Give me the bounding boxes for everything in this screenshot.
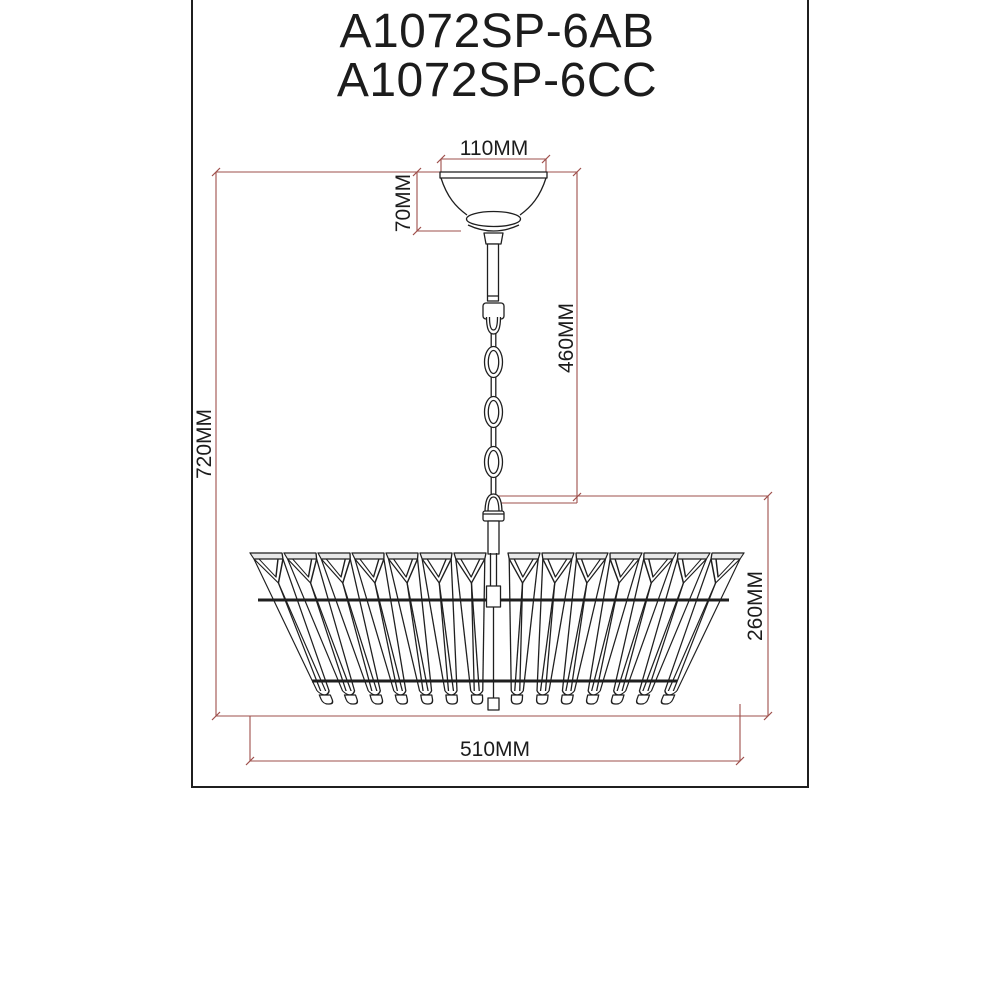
sheet-border [192, 0, 808, 787]
drawing-sheet: A1072SP-6AB A1072SP-6CC [0, 0, 1000, 1000]
dim-shade-diameter-label: 510MM [460, 738, 530, 761]
shade-center-stem [487, 553, 501, 710]
dim-overall-height-label: 720MM [193, 409, 216, 479]
ceiling-canopy [440, 172, 547, 244]
dim-canopy-height-label: 70MM [392, 174, 415, 232]
model-number-1: A1072SP-6AB [339, 5, 654, 58]
dim-chain-length-label: 460MM [555, 303, 578, 373]
suspension-chain [483, 244, 504, 554]
dimension-labels: 110MM 70MM 460MM 720MM 260MM 510MM [193, 137, 767, 761]
dim-shade-height-label: 260MM [744, 571, 767, 641]
model-number-2: A1072SP-6CC [337, 54, 657, 107]
technical-drawing: A1072SP-6AB A1072SP-6CC [0, 0, 1000, 1000]
dim-canopy-width-label: 110MM [460, 137, 528, 160]
crystal-shade [250, 553, 744, 710]
chandelier [250, 172, 744, 710]
model-title: A1072SP-6AB A1072SP-6CC [337, 5, 657, 107]
